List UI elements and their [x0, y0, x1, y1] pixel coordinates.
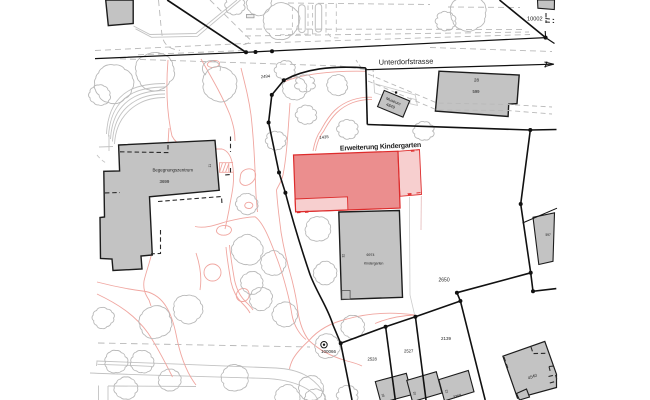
svg-text:11: 11: [208, 164, 212, 168]
svg-text:2139: 2139: [441, 336, 452, 341]
svg-text:599: 599: [473, 89, 481, 94]
svg-text:2650: 2650: [439, 278, 450, 284]
svg-text:Begegnungszentrum: Begegnungszentrum: [153, 168, 194, 173]
svg-text:28: 28: [474, 78, 480, 83]
svg-text:3368: 3368: [453, 393, 462, 399]
svg-text:3699: 3699: [160, 179, 170, 184]
svg-text:32: 32: [342, 254, 346, 258]
svg-text:2528: 2528: [368, 357, 378, 362]
svg-text:6974: 6974: [367, 253, 375, 257]
svg-text:100066: 100066: [321, 349, 337, 354]
svg-text:1435: 1435: [319, 134, 329, 140]
svg-text:597: 597: [546, 233, 552, 237]
svg-text:Unterdorfstrasse: Unterdorfstrasse: [379, 57, 434, 67]
svg-text:Kindergarten: Kindergarten: [364, 262, 384, 266]
svg-text:10002: 10002: [527, 17, 543, 23]
svg-text:2527: 2527: [404, 348, 414, 353]
svg-text:2494: 2494: [261, 73, 271, 79]
